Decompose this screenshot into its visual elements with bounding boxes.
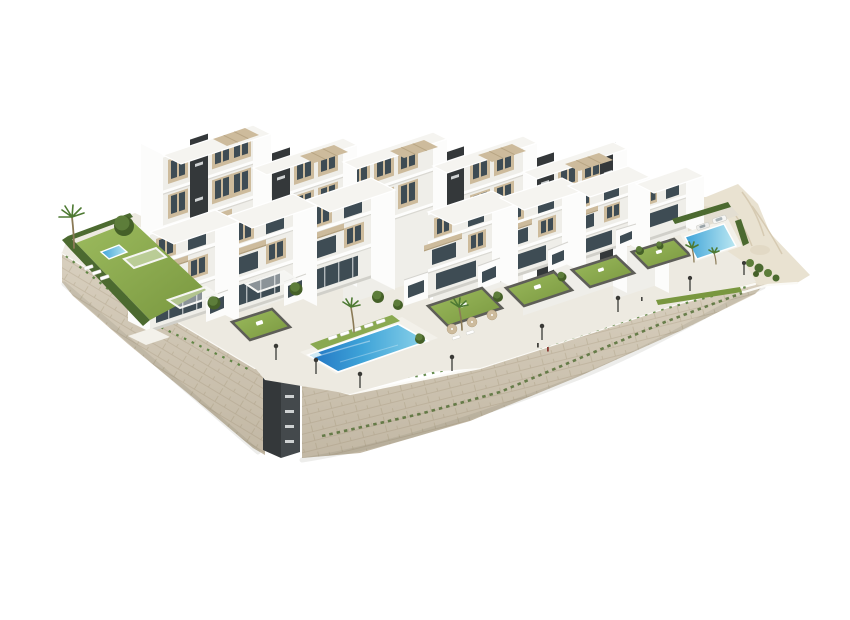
architectural-render [0,0,850,620]
render-stage [0,0,850,620]
